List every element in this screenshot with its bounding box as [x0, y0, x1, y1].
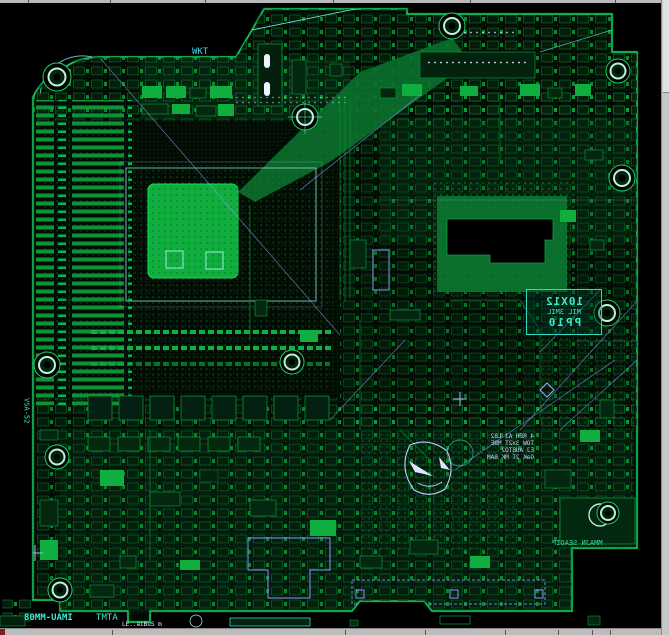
net-label-wkt: WKT — [192, 48, 208, 57]
designer-note-line: TOW 3x2T MBE — [448, 440, 534, 447]
mounting-hole — [43, 63, 71, 91]
scrollbar-corner-marker — [0, 629, 5, 635]
via-size-note-line3: PP10 — [547, 316, 582, 329]
ruler-tick — [205, 0, 206, 3]
vertical-scrollbar-thumb[interactable] — [663, 0, 669, 93]
designer-note-line: OaK 2T MK BAM — [448, 454, 534, 461]
mounting-hole — [45, 445, 69, 469]
scrollbar-separator — [425, 630, 426, 635]
scrollbar-separator — [610, 630, 611, 635]
pcb-viewer-window: WKT 10X12 MIL 3MIL PP10 4 REH AJ LB2 TOW… — [0, 0, 669, 635]
ruler-tick — [333, 0, 334, 3]
designer-note-line: 4 REH AJ LB2 — [448, 433, 534, 440]
via-size-note-line2: MIL 3MIL — [547, 308, 581, 316]
mounting-hole — [609, 165, 635, 191]
scrollbar-separator — [558, 630, 559, 635]
ruler-tick — [28, 0, 29, 3]
ruler-tick — [470, 0, 471, 3]
mounting-hole — [280, 350, 304, 374]
ruler-tick — [615, 0, 616, 3]
top-ruler-strip — [0, 0, 661, 3]
scrollbar-separator — [592, 630, 593, 635]
scrollbar-separator — [505, 630, 506, 635]
scrollbar-separator — [112, 630, 113, 635]
gpu-region — [437, 196, 567, 292]
ruler-tick — [110, 0, 111, 3]
mounting-hole — [439, 13, 465, 39]
vertical-scrollbar[interactable] — [661, 0, 669, 635]
silkscreen-label-bottom-right: MMAJN SEAOIP — [552, 540, 603, 547]
mounting-hole — [606, 59, 630, 83]
mounting-hole — [48, 578, 72, 602]
silkscreen-label-bottom-left-2: ATMT — [96, 614, 118, 623]
designer-note-block: 4 REH AJ LB2 TOW 3x2T MBE EJ AUBTO2 OaK … — [448, 433, 534, 461]
scrollbar-separator — [345, 630, 346, 635]
mounting-hole — [597, 502, 619, 524]
silkscreen-label-bottom-left: IMAU-MM08 — [24, 614, 73, 623]
mounting-hole — [34, 352, 60, 378]
vertical-label-left-edge: VSA-52 — [22, 398, 29, 423]
designer-note-line: EJ AUBTO2 — [448, 447, 534, 454]
horizontal-scrollbar[interactable] — [0, 628, 661, 635]
via-size-note-box: 10X12 MIL 3MIL PP10 — [526, 289, 602, 335]
via-size-note-line1: 10X12 — [545, 295, 583, 308]
